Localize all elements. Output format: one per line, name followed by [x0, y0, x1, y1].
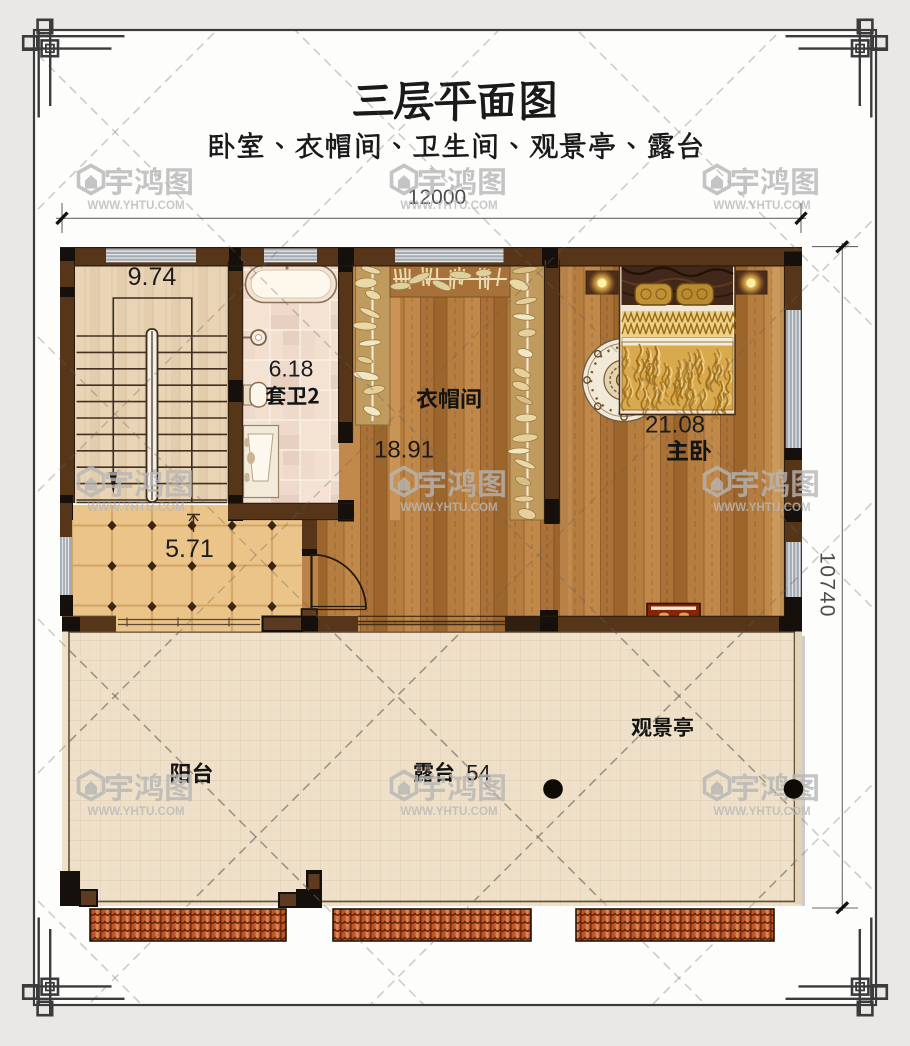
svg-text:6.18: 6.18 [269, 356, 314, 382]
svg-text:9.74: 9.74 [128, 263, 177, 291]
svg-text:18.91: 18.91 [374, 437, 434, 464]
svg-text:21.08: 21.08 [645, 412, 705, 439]
svg-text:5.71: 5.71 [165, 535, 214, 563]
